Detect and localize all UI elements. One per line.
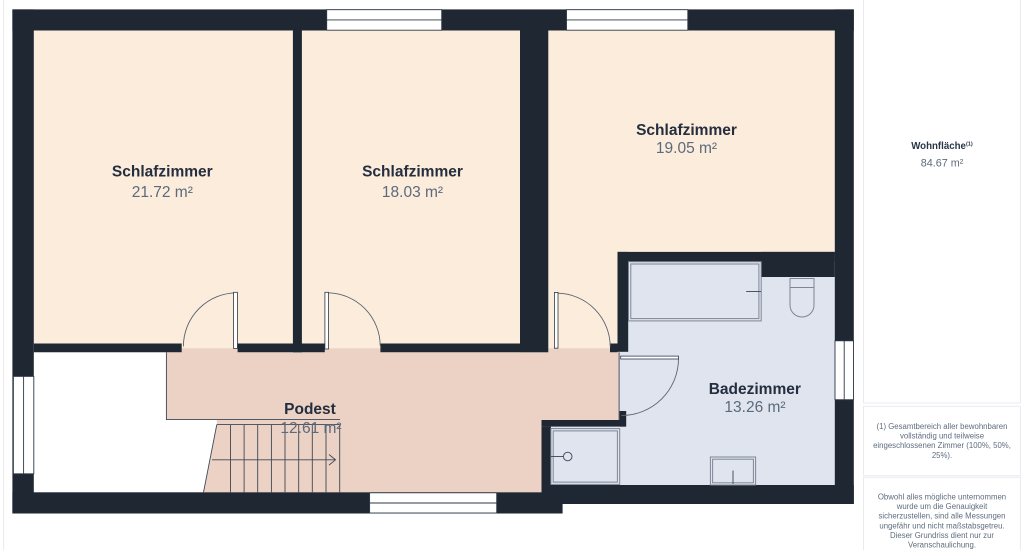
svg-text:ungefähr und nicht maßstabsget: ungefähr und nicht maßstabsgetreu.	[879, 521, 1004, 530]
svg-text:wurde um die Genauigkeit: wurde um die Genauigkeit	[896, 502, 988, 511]
svg-text:Schlafzimmer: Schlafzimmer	[362, 164, 463, 181]
svg-text:12.61 m²: 12.61 m²	[280, 420, 341, 437]
svg-text:Schlafzimmer: Schlafzimmer	[112, 164, 213, 181]
svg-text:84.67 m²: 84.67 m²	[921, 158, 964, 170]
svg-text:Obwohl alles mögliche unternom: Obwohl alles mögliche unternommen	[878, 492, 1006, 501]
svg-text:(1) Gesamtbereich aller bewohn: (1) Gesamtbereich aller bewohnbaren	[877, 422, 1008, 431]
svg-text:19.05 m²: 19.05 m²	[656, 140, 717, 157]
svg-text:eingeschlossenen Zimmer (100%,: eingeschlossenen Zimmer (100%, 50%,	[873, 441, 1011, 450]
svg-text:13.26 m²: 13.26 m²	[724, 399, 785, 416]
svg-text:18.03 m²: 18.03 m²	[382, 184, 443, 201]
svg-text:vollständig und teilweise: vollständig und teilweise	[900, 432, 984, 441]
svg-text:Dieser Grundriss dient nur zur: Dieser Grundriss dient nur zur	[890, 531, 994, 540]
svg-text:sicherzustellen, sind alle Mes: sicherzustellen, sind alle Messungen	[879, 512, 1006, 521]
svg-text:Veranschaulichung.: Veranschaulichung.	[908, 541, 976, 550]
svg-text:Podest: Podest	[284, 401, 336, 418]
svg-text:25%).: 25%).	[932, 451, 952, 460]
svg-text:Wohnfläche(1): Wohnfläche(1)	[911, 141, 973, 152]
svg-text:Badezimmer: Badezimmer	[709, 381, 801, 398]
svg-text:Schlafzimmer: Schlafzimmer	[636, 122, 737, 139]
svg-text:21.72 m²: 21.72 m²	[132, 184, 193, 201]
